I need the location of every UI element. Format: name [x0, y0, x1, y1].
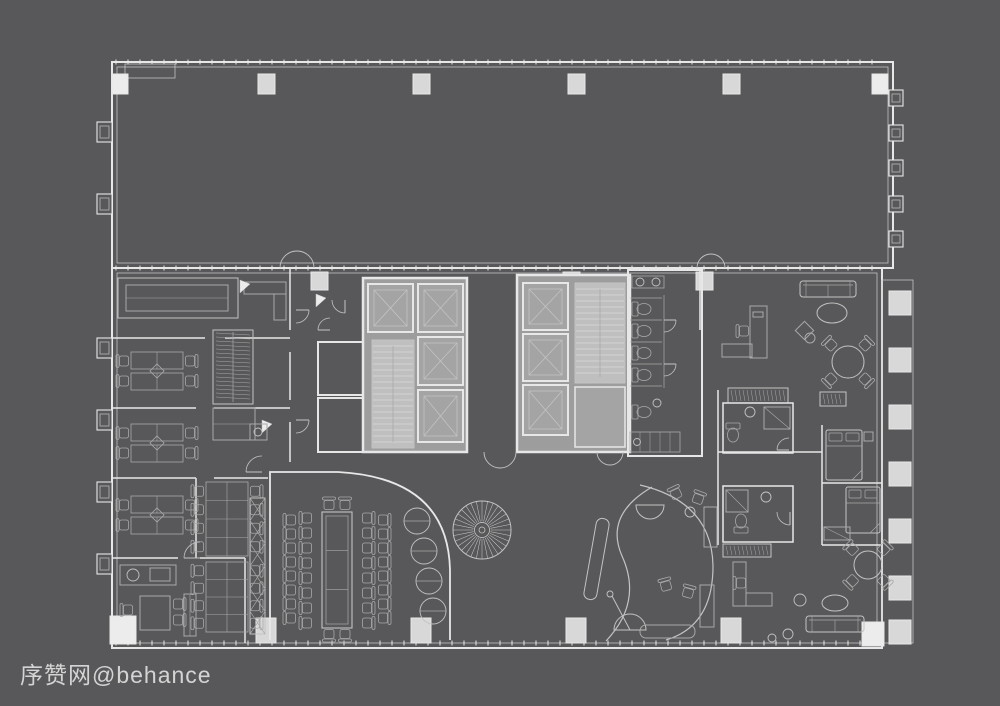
conference-chair — [379, 585, 388, 595]
conference-chair — [323, 639, 336, 642]
east-window-bay — [889, 231, 903, 247]
entrance-double-door-west — [280, 251, 297, 268]
workstation-bench — [191, 582, 204, 595]
east-facade-column — [889, 519, 911, 543]
wardrobe — [751, 390, 753, 401]
media-console — [700, 585, 714, 627]
bed — [826, 430, 862, 480]
conference-chair — [283, 598, 296, 611]
conference-chair — [363, 603, 372, 613]
workstation-bench — [191, 564, 194, 577]
partition-wall — [700, 268, 882, 545]
break-chair — [120, 604, 123, 617]
workstation-bench — [191, 562, 263, 632]
bed — [870, 523, 880, 533]
entrance-double-door-east — [697, 254, 725, 268]
wardrobe — [839, 394, 841, 404]
workstation-bench — [251, 566, 260, 576]
cooktop — [150, 568, 170, 581]
bed — [826, 430, 862, 480]
workstation-bench — [251, 564, 264, 577]
door — [296, 420, 309, 433]
upper-hall-wall-inner — [117, 67, 888, 263]
conference-chair — [363, 512, 376, 525]
conference-chair — [372, 587, 375, 600]
conference-chair — [299, 527, 312, 540]
conference-chair — [379, 528, 392, 541]
workstation-cluster — [116, 355, 129, 368]
conference-chair — [340, 630, 350, 639]
dining-table — [846, 574, 859, 587]
lounge-chair — [658, 484, 707, 599]
vanity-counter — [632, 276, 664, 288]
door — [777, 438, 789, 450]
workstation-cluster — [116, 375, 129, 388]
media-console — [700, 585, 714, 627]
corridor-double-door — [500, 452, 516, 468]
conference-chair — [299, 557, 312, 570]
desk-chair — [736, 325, 749, 338]
workstation-cluster — [186, 448, 195, 458]
shower-diag — [726, 490, 748, 512]
wardrobe — [739, 390, 741, 401]
conference-chair — [339, 639, 352, 642]
counter-semicircle — [636, 505, 664, 519]
side-table — [795, 321, 813, 339]
workstation-cluster — [116, 355, 119, 368]
facade-column — [413, 74, 430, 94]
workstation-cluster — [186, 376, 195, 386]
workstation-bench — [260, 522, 263, 535]
conference-chair — [379, 515, 388, 525]
conference-chair — [379, 571, 388, 581]
spiral-staircase — [488, 536, 502, 550]
west-window-bay — [97, 482, 112, 502]
counter-semicircle — [636, 505, 664, 519]
round-table-chord — [404, 521, 446, 611]
conference-chair — [363, 558, 372, 568]
lower-floor-wall-inner — [117, 273, 877, 643]
bed — [852, 470, 862, 480]
conference-chair — [324, 630, 334, 639]
west-window-bay — [97, 122, 112, 142]
conference-chair — [379, 613, 388, 623]
workstation-bench — [191, 540, 194, 553]
bathroom — [723, 486, 793, 542]
sink — [653, 399, 661, 407]
workstation-bench — [191, 564, 204, 577]
conference-chair — [323, 497, 336, 500]
wardrobe — [779, 390, 781, 401]
east-facade-column — [889, 291, 911, 315]
corner-column — [112, 74, 128, 94]
door — [318, 318, 330, 330]
service-room — [318, 342, 363, 395]
corner-column-se — [862, 622, 884, 646]
conference-chair — [340, 501, 350, 510]
dining-table — [824, 338, 837, 351]
conference-chair — [283, 570, 286, 583]
east-facade-column — [889, 348, 911, 372]
workstation-bench — [191, 599, 194, 612]
bed — [846, 433, 859, 441]
entrance-double-door-east — [711, 254, 725, 268]
side-table — [795, 321, 813, 339]
dining-table — [877, 574, 890, 587]
conference-chair — [363, 602, 376, 615]
pantry-sink — [127, 569, 139, 581]
conference-chair — [372, 512, 375, 525]
work-desk — [733, 562, 746, 606]
wardrobe — [755, 390, 757, 401]
wardrobe — [775, 390, 777, 401]
west-window-bay — [97, 194, 112, 214]
wardrobe — [743, 390, 745, 401]
wardrobe — [728, 388, 788, 403]
conference-chair — [287, 515, 296, 525]
toilet — [728, 428, 739, 442]
conference-table — [326, 516, 348, 624]
workstation-cluster — [116, 424, 198, 462]
nightstand — [864, 432, 873, 441]
east-facade-column — [889, 462, 911, 486]
toilet — [637, 326, 651, 337]
conference-chair — [303, 573, 312, 583]
conference-chair — [339, 630, 352, 643]
conference-chair — [287, 543, 296, 553]
door — [318, 318, 330, 330]
workstation-bench — [191, 599, 204, 612]
corner-column-sw — [110, 616, 136, 644]
workstation-bench — [251, 486, 260, 496]
elevator-lobby — [575, 387, 625, 447]
sink — [634, 439, 641, 446]
conference-chair — [372, 617, 375, 630]
east-window-bay — [889, 90, 903, 106]
conference-chair — [283, 542, 296, 555]
conference-chair — [287, 585, 296, 595]
workstation-cluster — [116, 375, 119, 388]
upper-hall-wall-outer — [112, 62, 893, 268]
plant — [783, 629, 793, 639]
conference-chair — [283, 528, 296, 541]
door — [296, 420, 309, 433]
conference-table — [322, 512, 352, 628]
conference-chair — [372, 557, 375, 570]
pantry-cabinet — [640, 432, 670, 452]
door — [246, 456, 262, 472]
corner-desk — [274, 294, 286, 320]
workstation-bench — [251, 601, 260, 611]
conference-chair — [379, 514, 392, 527]
workstation-cluster — [186, 375, 199, 388]
dining-table — [821, 371, 839, 389]
conference-chair — [363, 617, 376, 630]
media-console — [704, 507, 717, 547]
wardrobe — [771, 390, 773, 401]
wardrobe — [750, 546, 752, 555]
workstation-cluster — [116, 519, 129, 532]
cooktop — [150, 568, 170, 581]
corridor-double-door — [484, 452, 516, 468]
sink — [745, 407, 755, 417]
sofa — [800, 281, 856, 297]
conference-chair — [303, 618, 312, 628]
elevator-shaft — [418, 390, 463, 442]
elevator-shaft — [368, 284, 413, 332]
service-room — [318, 398, 363, 452]
conference-chair — [323, 497, 336, 510]
spiral-staircase — [479, 527, 485, 533]
desk-chair — [733, 577, 746, 590]
sink — [652, 278, 660, 286]
spiral-staircase — [461, 536, 475, 550]
toilet — [632, 324, 651, 338]
workstation-bench — [191, 485, 194, 498]
workstation-bench — [260, 485, 263, 498]
door — [184, 542, 200, 558]
east-facade-column — [889, 291, 911, 644]
workstation-cluster — [186, 500, 195, 510]
dining-table — [821, 335, 832, 346]
workstation-cluster — [186, 447, 199, 460]
conference-chair — [379, 612, 392, 625]
work-desk — [733, 562, 746, 606]
conference-chair — [283, 584, 286, 597]
stairwell-a — [372, 340, 414, 448]
wardrobe — [783, 390, 785, 401]
conference-chair — [299, 557, 302, 570]
pantry-counter — [630, 432, 680, 452]
conference-chair — [372, 542, 375, 555]
sink — [761, 492, 771, 502]
desk-chair — [740, 326, 749, 336]
dining-table — [858, 338, 871, 351]
conference-chair — [283, 542, 286, 555]
toilet — [632, 302, 651, 316]
toilet — [632, 302, 651, 419]
toilet — [734, 514, 748, 533]
conference-chair — [287, 571, 296, 581]
conference-chair — [363, 527, 376, 540]
east-facade-column — [889, 405, 911, 429]
wardrobe — [759, 390, 761, 401]
workstation-cluster — [116, 447, 119, 460]
conference-chair — [363, 557, 376, 570]
conference-chair — [299, 617, 312, 630]
conference-room-wall — [270, 472, 450, 640]
wardrobe — [767, 390, 769, 401]
side-table — [685, 507, 695, 517]
conference-chair — [363, 543, 372, 553]
workstation-cluster — [186, 427, 199, 440]
curved-partition — [606, 487, 652, 641]
side-table — [685, 507, 695, 517]
workstation-bench — [191, 482, 263, 556]
conference-chair — [379, 584, 392, 597]
toilet — [637, 304, 651, 315]
wardrobe — [742, 546, 744, 555]
toilet — [632, 405, 651, 419]
service-room — [318, 342, 363, 395]
shower-diag — [764, 407, 790, 429]
bed — [846, 487, 880, 533]
conference-chair — [283, 598, 286, 611]
toilet — [637, 407, 651, 418]
toilet — [637, 370, 651, 381]
workstation-cluster — [120, 500, 129, 510]
west-window-bay — [97, 554, 112, 574]
wardrobe — [762, 546, 764, 555]
curved-partition — [640, 485, 713, 640]
conference-chair — [299, 542, 302, 555]
curved-partition — [606, 487, 652, 641]
dining-table — [821, 378, 832, 389]
pantry-sink — [127, 569, 139, 581]
wardrobe — [730, 546, 732, 555]
workstation-cluster — [120, 520, 129, 530]
lounge-chair — [681, 584, 697, 599]
facade-column-south — [721, 618, 741, 643]
corner-desk — [244, 282, 286, 294]
conference-chair — [379, 529, 388, 539]
conference-chair — [283, 556, 286, 569]
elevator-shaft — [418, 284, 463, 332]
plant — [768, 594, 806, 642]
reception-desk — [583, 517, 610, 600]
conference-chair — [299, 587, 312, 600]
conference-chair — [299, 512, 302, 525]
east-facade-column — [889, 576, 911, 600]
workstation-cluster — [120, 376, 129, 386]
elevator-shaft — [523, 283, 568, 330]
dining-table — [842, 573, 860, 591]
desk-chair — [736, 325, 749, 338]
conference-chair — [363, 542, 376, 555]
conference-chair — [388, 612, 391, 625]
elevator-lobby — [575, 387, 625, 447]
floor-plan-page: 序赞网@behance — [0, 0, 1000, 706]
reception-desk — [583, 517, 610, 600]
media-console — [704, 507, 717, 547]
corner-column-sw — [110, 616, 136, 644]
west-window-bay — [97, 410, 112, 430]
workstation-cluster — [116, 496, 198, 534]
bench — [640, 625, 695, 638]
dining-table — [842, 579, 853, 590]
door — [664, 364, 676, 376]
west-window-bay — [97, 122, 112, 574]
plant — [794, 594, 806, 606]
wardrobe — [738, 546, 740, 555]
floor-lamp-base — [607, 591, 613, 597]
monitor — [753, 312, 763, 317]
conference-chair — [303, 528, 312, 538]
toilet — [632, 346, 651, 360]
conference-chair — [372, 602, 375, 615]
wardrobe — [731, 390, 733, 401]
conference-chair — [283, 570, 296, 583]
conference-chair — [287, 599, 296, 609]
lower-floor-wall-inner — [117, 273, 877, 643]
wardrobe — [747, 390, 749, 401]
conference-chair — [283, 584, 296, 597]
conference-chair — [339, 497, 352, 500]
conference-chair — [388, 542, 391, 555]
conference-chair — [299, 587, 302, 600]
conference-chair — [299, 602, 312, 615]
service-room — [318, 398, 363, 452]
conference-chair — [379, 598, 392, 611]
workstation-bench — [191, 522, 204, 535]
roof-detail — [125, 64, 175, 78]
workstation-bench — [191, 617, 204, 630]
coffee-table — [817, 303, 847, 323]
conference-chair — [388, 598, 391, 611]
conference-chair — [379, 556, 392, 569]
executive-desk-return — [722, 344, 752, 357]
conference-chair — [283, 528, 286, 541]
conference-chair — [283, 514, 286, 527]
break-chair — [124, 605, 133, 615]
wardrobe — [723, 544, 771, 557]
coffee-table — [822, 595, 848, 611]
facade-column-south — [256, 618, 276, 643]
facade-column — [723, 74, 740, 94]
door-wedge — [316, 294, 326, 307]
workstation-cluster — [116, 447, 129, 460]
conference-chair — [283, 556, 296, 569]
conference-chair — [363, 618, 372, 628]
facade-column — [258, 74, 275, 94]
conference-chair — [388, 514, 391, 527]
workstation-cluster — [195, 447, 198, 460]
toilet — [632, 368, 651, 382]
spiral-staircase — [461, 509, 475, 523]
spiral-staircase — [453, 501, 511, 559]
entrance-double-door-west — [280, 251, 314, 268]
coat-closet — [213, 330, 253, 404]
conference-chair — [303, 513, 312, 523]
conference-chair — [299, 512, 312, 525]
bench — [640, 625, 695, 638]
toilet — [726, 423, 740, 442]
dining-table — [857, 371, 875, 389]
corridor-double-door — [484, 452, 500, 468]
workstation-cluster — [116, 499, 129, 512]
dining-table — [854, 551, 882, 579]
break-table — [140, 596, 170, 630]
conference-chair — [283, 497, 391, 642]
bed — [846, 487, 880, 533]
wardrobe — [746, 546, 748, 555]
vanity-counter — [632, 276, 664, 288]
coffee-table — [817, 303, 847, 323]
conference-chair — [299, 542, 312, 555]
conference-chair — [388, 584, 391, 597]
interior-column — [311, 272, 328, 290]
stairwell-b — [575, 283, 625, 383]
wardrobe — [820, 392, 846, 406]
pantry-counter — [630, 432, 680, 452]
curved-partition — [640, 485, 713, 640]
workstation-cluster — [195, 355, 198, 368]
lobby-double-door — [597, 452, 610, 465]
interior-column — [696, 272, 713, 290]
lounge-chair — [658, 577, 674, 592]
conference-chair — [388, 528, 391, 541]
door — [664, 320, 676, 332]
